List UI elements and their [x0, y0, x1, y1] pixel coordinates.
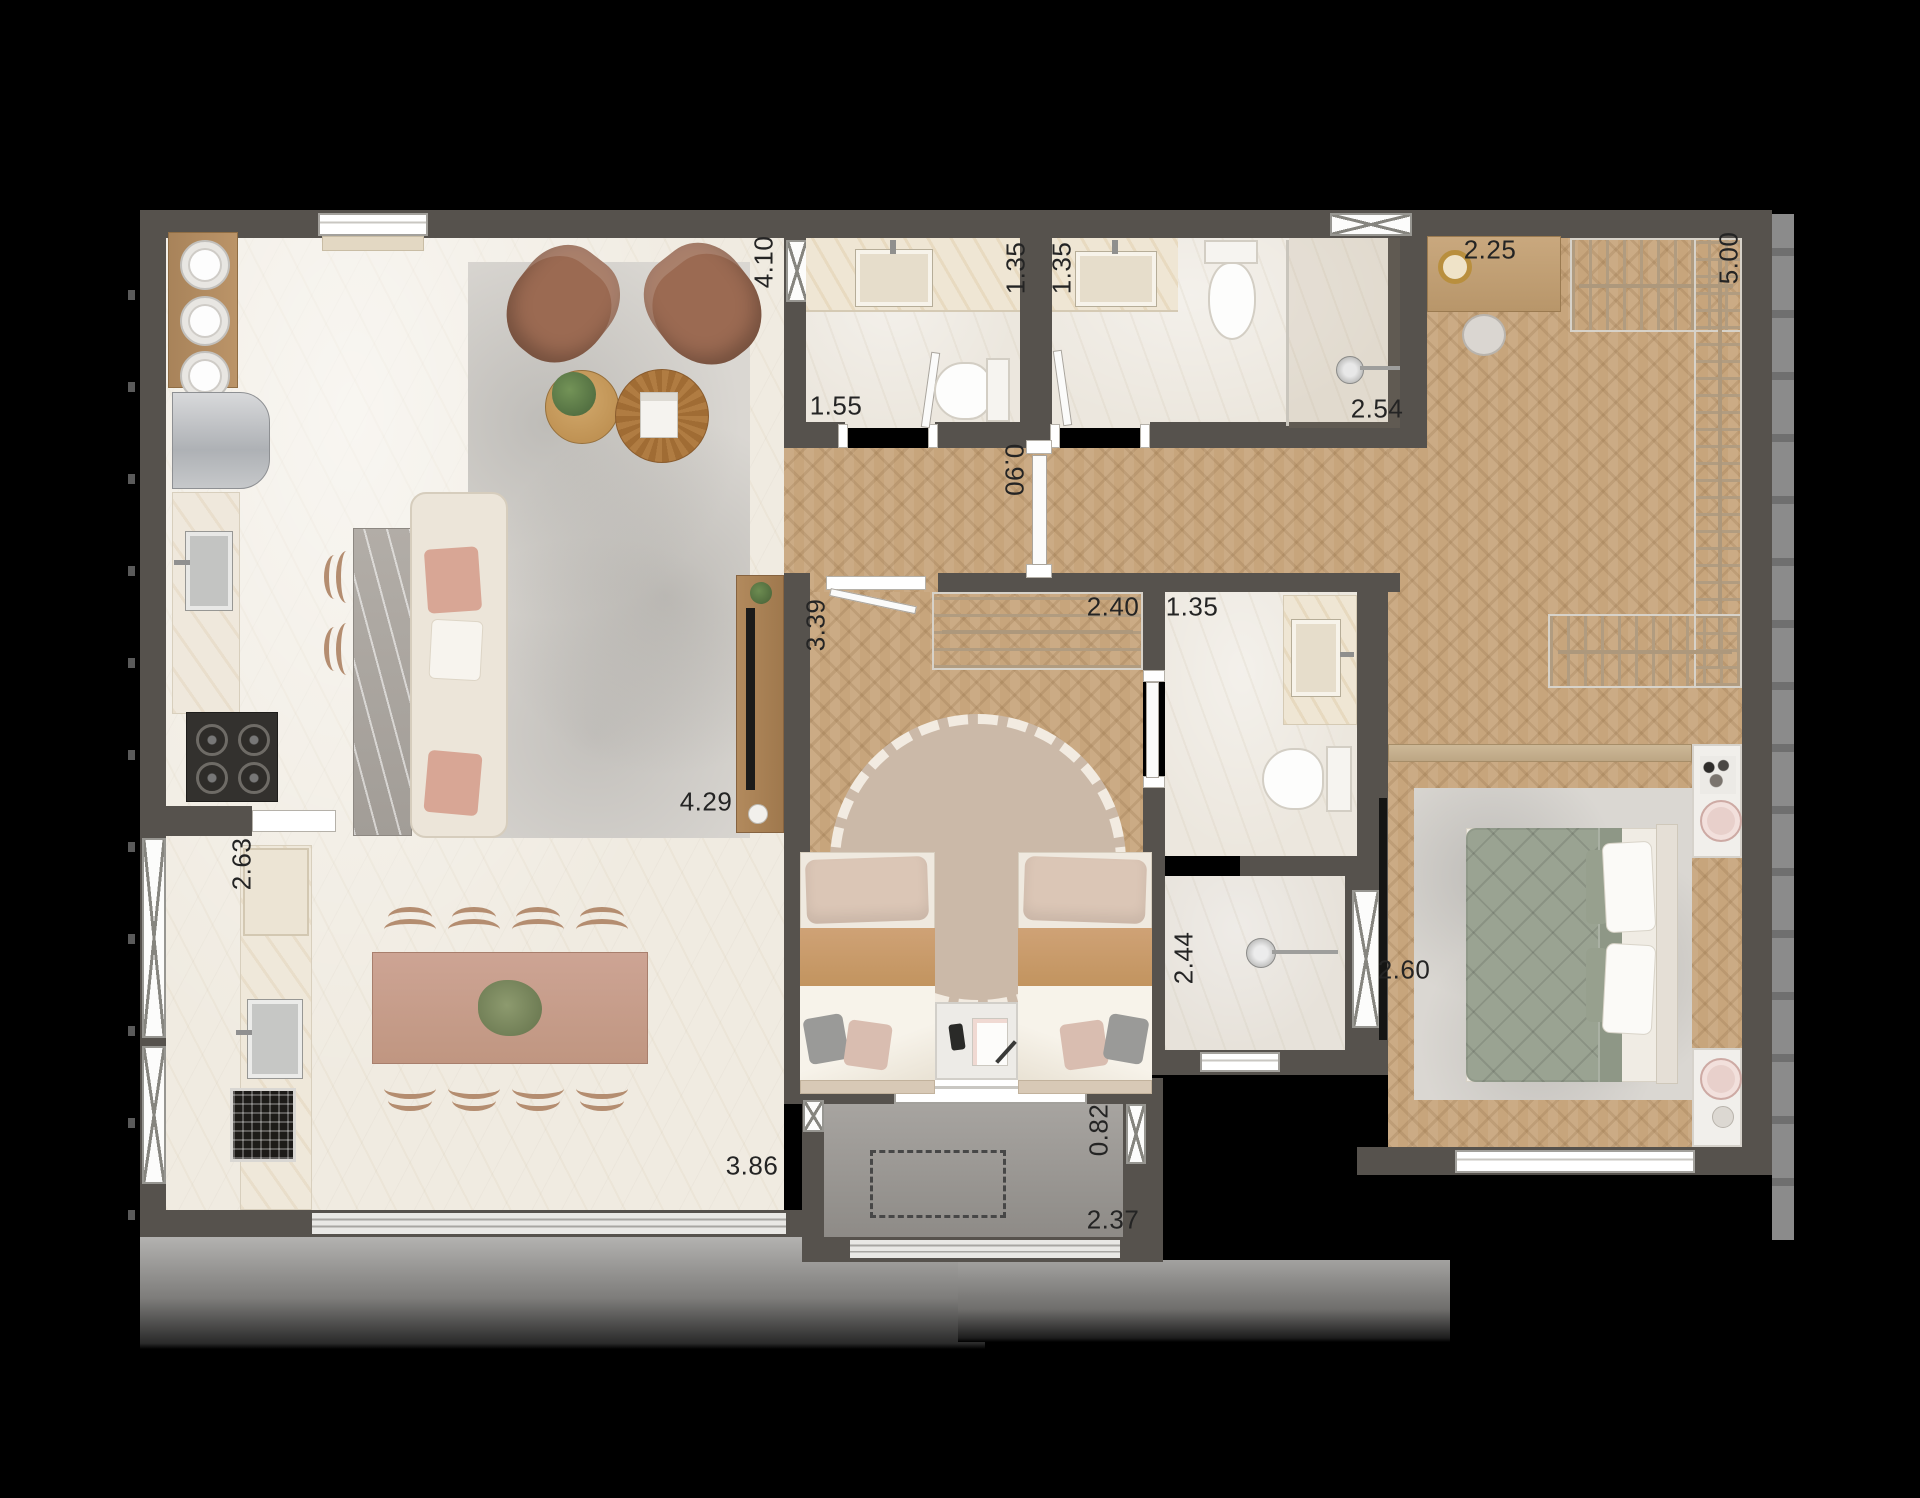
- dim-living-length: 4.10: [749, 236, 780, 289]
- sofa-cushion-pink-2: [423, 750, 482, 816]
- dim-wardrobe-width: 2.40: [1087, 592, 1140, 623]
- bathroom1-door-frame-l: [838, 424, 848, 448]
- sofa-cushion-pink-1: [424, 546, 482, 614]
- dim-living-width: 4.29: [680, 787, 733, 818]
- bath1-toilet-bowl: [934, 362, 992, 420]
- hall-door-frame-bottom: [1026, 564, 1052, 578]
- dim-closet-desk: 2.25: [1464, 235, 1517, 266]
- bath2-toilet-bowl: [1208, 262, 1256, 340]
- console-plant: [750, 582, 772, 604]
- hall-door-leaf: [1032, 455, 1047, 565]
- dim-bath3-width: 1.35: [1166, 592, 1219, 623]
- balcony-left-window: [803, 1100, 824, 1132]
- dim-service-width: 2.63: [227, 838, 258, 891]
- tv-screen: [746, 608, 755, 790]
- closet-stool: [1462, 314, 1506, 356]
- burner-3: [196, 762, 228, 794]
- coffee-table-book: [640, 392, 678, 438]
- dim-bath1-width: 1.35: [1001, 242, 1032, 295]
- shower-shaft-window: [1352, 890, 1380, 1028]
- bed2b-cushion-gray: [1102, 1013, 1149, 1065]
- dim-bath2-width: 1.35: [1047, 242, 1078, 295]
- wall-bedroom2-bath3-a: [1143, 592, 1165, 680]
- dining-chair-2: [446, 906, 502, 940]
- dining-chair-3: [510, 906, 566, 940]
- wardrobe-rail: [942, 630, 1132, 634]
- dim-bath1-length: 1.55: [810, 391, 863, 422]
- master-tray-top: [1700, 800, 1742, 842]
- closet-rail-right: [1718, 258, 1722, 668]
- wall-right: [1742, 210, 1772, 1175]
- dining-chair-5: [382, 1078, 438, 1112]
- kitchen-island: [353, 528, 412, 836]
- decor-plate-1: [180, 240, 230, 290]
- bath3-sink: [1292, 620, 1340, 696]
- island-stool-2: [323, 621, 357, 677]
- dining-chair-4: [574, 906, 630, 940]
- service-window-upper: [142, 838, 166, 1038]
- exterior-balcony-apron: [958, 1260, 1450, 1342]
- dining-sliding-door: [312, 1213, 786, 1234]
- console-dish: [748, 804, 768, 824]
- balcony-future-equipment-outline: [870, 1150, 1006, 1218]
- fridge: [172, 392, 270, 489]
- bath2-shower-arm: [1360, 366, 1400, 370]
- kitchen-passage-frame: [252, 810, 336, 832]
- dining-chair-7: [510, 1078, 566, 1112]
- dining-chair-6: [446, 1078, 502, 1112]
- dim-closet-length: 5.00: [1714, 232, 1745, 285]
- wall-bath3-shower-divider: [1240, 856, 1357, 876]
- bath3-toilet-tank: [1326, 746, 1352, 812]
- wall-kitchen-service: [140, 806, 252, 836]
- bed2a-cushion-pink: [843, 1019, 893, 1071]
- burner-1: [196, 724, 228, 756]
- burner-4: [238, 762, 270, 794]
- master-pillow-white-2: [1602, 943, 1657, 1035]
- bed2b-pillow: [1023, 856, 1147, 924]
- dim-balcony-depth: 0.82: [1084, 1104, 1115, 1157]
- bath3-shower-arm: [1272, 950, 1338, 954]
- service-faucet: [236, 1030, 252, 1035]
- master-headboard: [1656, 824, 1678, 1084]
- dim-bedroom2-length: 3.39: [801, 599, 832, 652]
- sofa-cushion-white: [428, 619, 483, 682]
- bath2-faucet: [1112, 240, 1118, 254]
- bedroom2-door-threshold: [826, 576, 926, 590]
- bath2-shower-head: [1336, 356, 1364, 384]
- bed2b-cushion-pink: [1059, 1019, 1109, 1071]
- closet-shelf-bottom: [1548, 614, 1742, 688]
- bath2-toilet-tank: [1204, 240, 1258, 264]
- master-bottom-window: [1455, 1150, 1695, 1173]
- dim-bath3-length: 2.44: [1169, 932, 1200, 985]
- dim-balcony-width: 2.37: [1087, 1205, 1140, 1236]
- dining-chair-8: [574, 1078, 630, 1112]
- master-shelf-band: [1388, 744, 1692, 762]
- bed2b-throw: [1018, 928, 1152, 986]
- bath3-shaft-window: [1200, 1052, 1280, 1072]
- bathroom3-door-leaf: [1146, 682, 1159, 778]
- dim-master-width: 2.60: [1378, 955, 1431, 986]
- dim-dining-width: 3.86: [726, 1151, 779, 1182]
- island-stool-1: [323, 549, 357, 605]
- tv-console: [736, 575, 784, 833]
- bed2a-throw: [800, 928, 935, 986]
- bath1-sink: [856, 250, 932, 306]
- bath3-faucet: [1340, 652, 1354, 657]
- master-pillow-white-1: [1602, 841, 1657, 933]
- bathroom2-top-window: [1330, 213, 1412, 236]
- master-cup: [1712, 1106, 1734, 1128]
- dining-centerpiece-plant: [478, 980, 542, 1036]
- bathroom3-door-frame-top: [1143, 670, 1165, 682]
- master-tray-bottom: [1700, 1058, 1742, 1100]
- kitchen-faucet: [174, 560, 190, 565]
- master-tv-panel: [1379, 798, 1387, 1040]
- living-top-window-sill: [322, 236, 424, 251]
- service-window-lower: [142, 1046, 166, 1184]
- bath2-sink: [1076, 252, 1156, 306]
- dim-bath2-length: 2.54: [1351, 394, 1404, 425]
- bed2a-cushion-gray: [802, 1013, 849, 1065]
- kitchen-sink: [186, 532, 232, 610]
- hall-door-frame-top: [1026, 440, 1052, 454]
- wall-bedroom2-top: [938, 573, 1400, 592]
- master-bed-quilt: [1466, 828, 1600, 1082]
- decor-plate-2: [180, 296, 230, 346]
- burner-2: [238, 724, 270, 756]
- bathroom2-door-frame-r: [1140, 424, 1150, 448]
- bed2a-foot-bench: [800, 1080, 935, 1094]
- living-top-window: [318, 213, 428, 236]
- bed2a-pillow: [805, 856, 929, 924]
- hall-floor: [784, 448, 1427, 592]
- exterior-right-strip: [1772, 214, 1794, 1240]
- coffee-table-plant: [552, 372, 596, 416]
- exterior-left-ticks: [128, 240, 135, 1220]
- bed2b-foot-bench: [1018, 1080, 1152, 1094]
- floorplan-canvas: 4.10 1.35 1.35 2.25 5.00 1.55 2.54 0.90 …: [0, 0, 1920, 1498]
- closet-rail-bottom: [1558, 650, 1733, 654]
- perfume-set: [1700, 756, 1736, 794]
- bath1-faucet: [890, 240, 896, 254]
- barbecue-grill: [230, 1088, 296, 1162]
- bath1-toilet-tank: [986, 358, 1010, 422]
- balcony-right-window: [1126, 1104, 1146, 1164]
- dim-hall-door: 0.90: [999, 444, 1030, 497]
- bath3-toilet-bowl: [1262, 748, 1324, 810]
- service-sink: [248, 1000, 302, 1078]
- nightstand-book: [972, 1018, 1008, 1066]
- dining-chair-1: [382, 906, 438, 940]
- balcony-sliding-door: [850, 1240, 1120, 1258]
- bathroom1-window: [786, 240, 808, 302]
